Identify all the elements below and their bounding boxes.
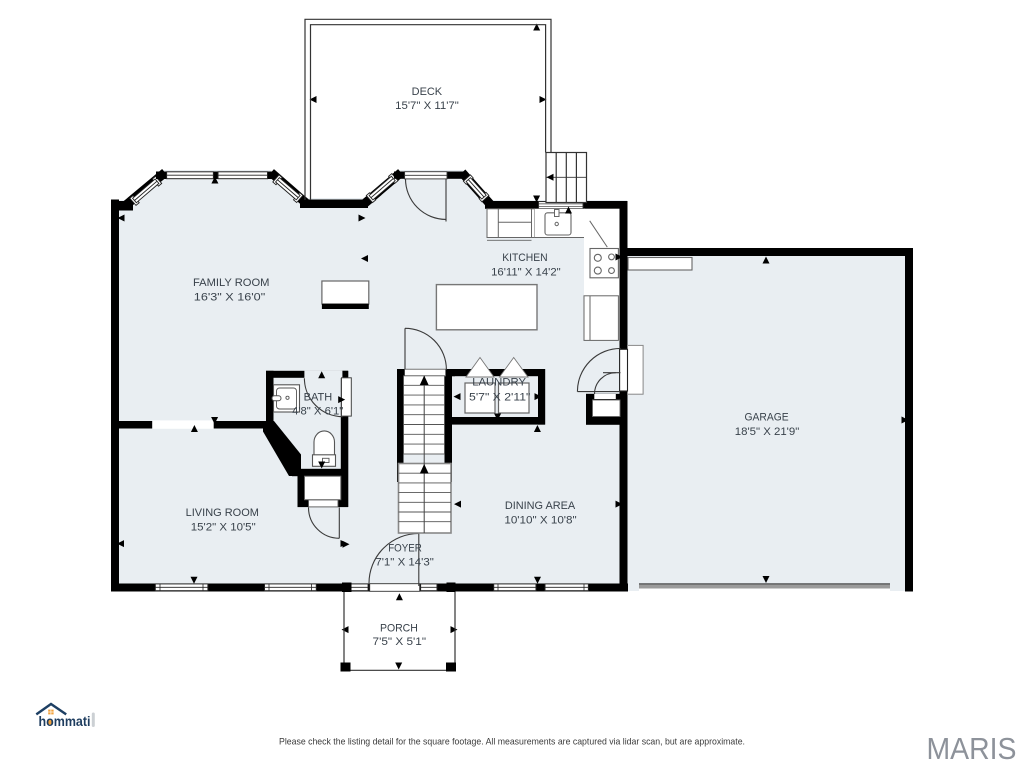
svg-text:7'1" X 14'3": 7'1" X 14'3" <box>375 557 434 569</box>
svg-text:BATH: BATH <box>304 392 333 404</box>
svg-text:GARAGE: GARAGE <box>745 411 789 423</box>
svg-text:16'3" X 16'0": 16'3" X 16'0" <box>194 292 265 304</box>
svg-text:7'5" X 5'1": 7'5" X 5'1" <box>373 636 427 648</box>
svg-text:18'5" X 21'9": 18'5" X 21'9" <box>735 426 800 438</box>
svg-text:KITCHEN: KITCHEN <box>502 252 547 264</box>
svg-text:FOYER: FOYER <box>388 542 422 554</box>
svg-text:15'7" X 11'7": 15'7" X 11'7" <box>395 100 459 112</box>
svg-text:DECK: DECK <box>412 86 443 98</box>
svg-text:hommati: hommati <box>39 714 91 729</box>
svg-text:PORCH: PORCH <box>380 622 418 634</box>
svg-text:LIVING ROOM: LIVING ROOM <box>186 507 259 519</box>
svg-text:4'8" X 6'1": 4'8" X 6'1" <box>292 406 343 418</box>
svg-text:5'7" X 2'11": 5'7" X 2'11" <box>469 392 530 404</box>
svg-text:DINING AREA: DINING AREA <box>505 500 576 512</box>
svg-text:10'10" X 10'8": 10'10" X 10'8" <box>504 515 576 527</box>
svg-text:16'11" X 14'2": 16'11" X 14'2" <box>491 267 561 279</box>
svg-text:15'2" X 10'5": 15'2" X 10'5" <box>191 521 256 533</box>
svg-text:Please check the listing detai: Please check the listing detail for the … <box>279 736 745 746</box>
svg-text:MARIS: MARIS <box>927 732 1017 766</box>
svg-text:LAUNDRY: LAUNDRY <box>472 376 526 388</box>
svg-text:FAMILY ROOM: FAMILY ROOM <box>193 277 270 289</box>
